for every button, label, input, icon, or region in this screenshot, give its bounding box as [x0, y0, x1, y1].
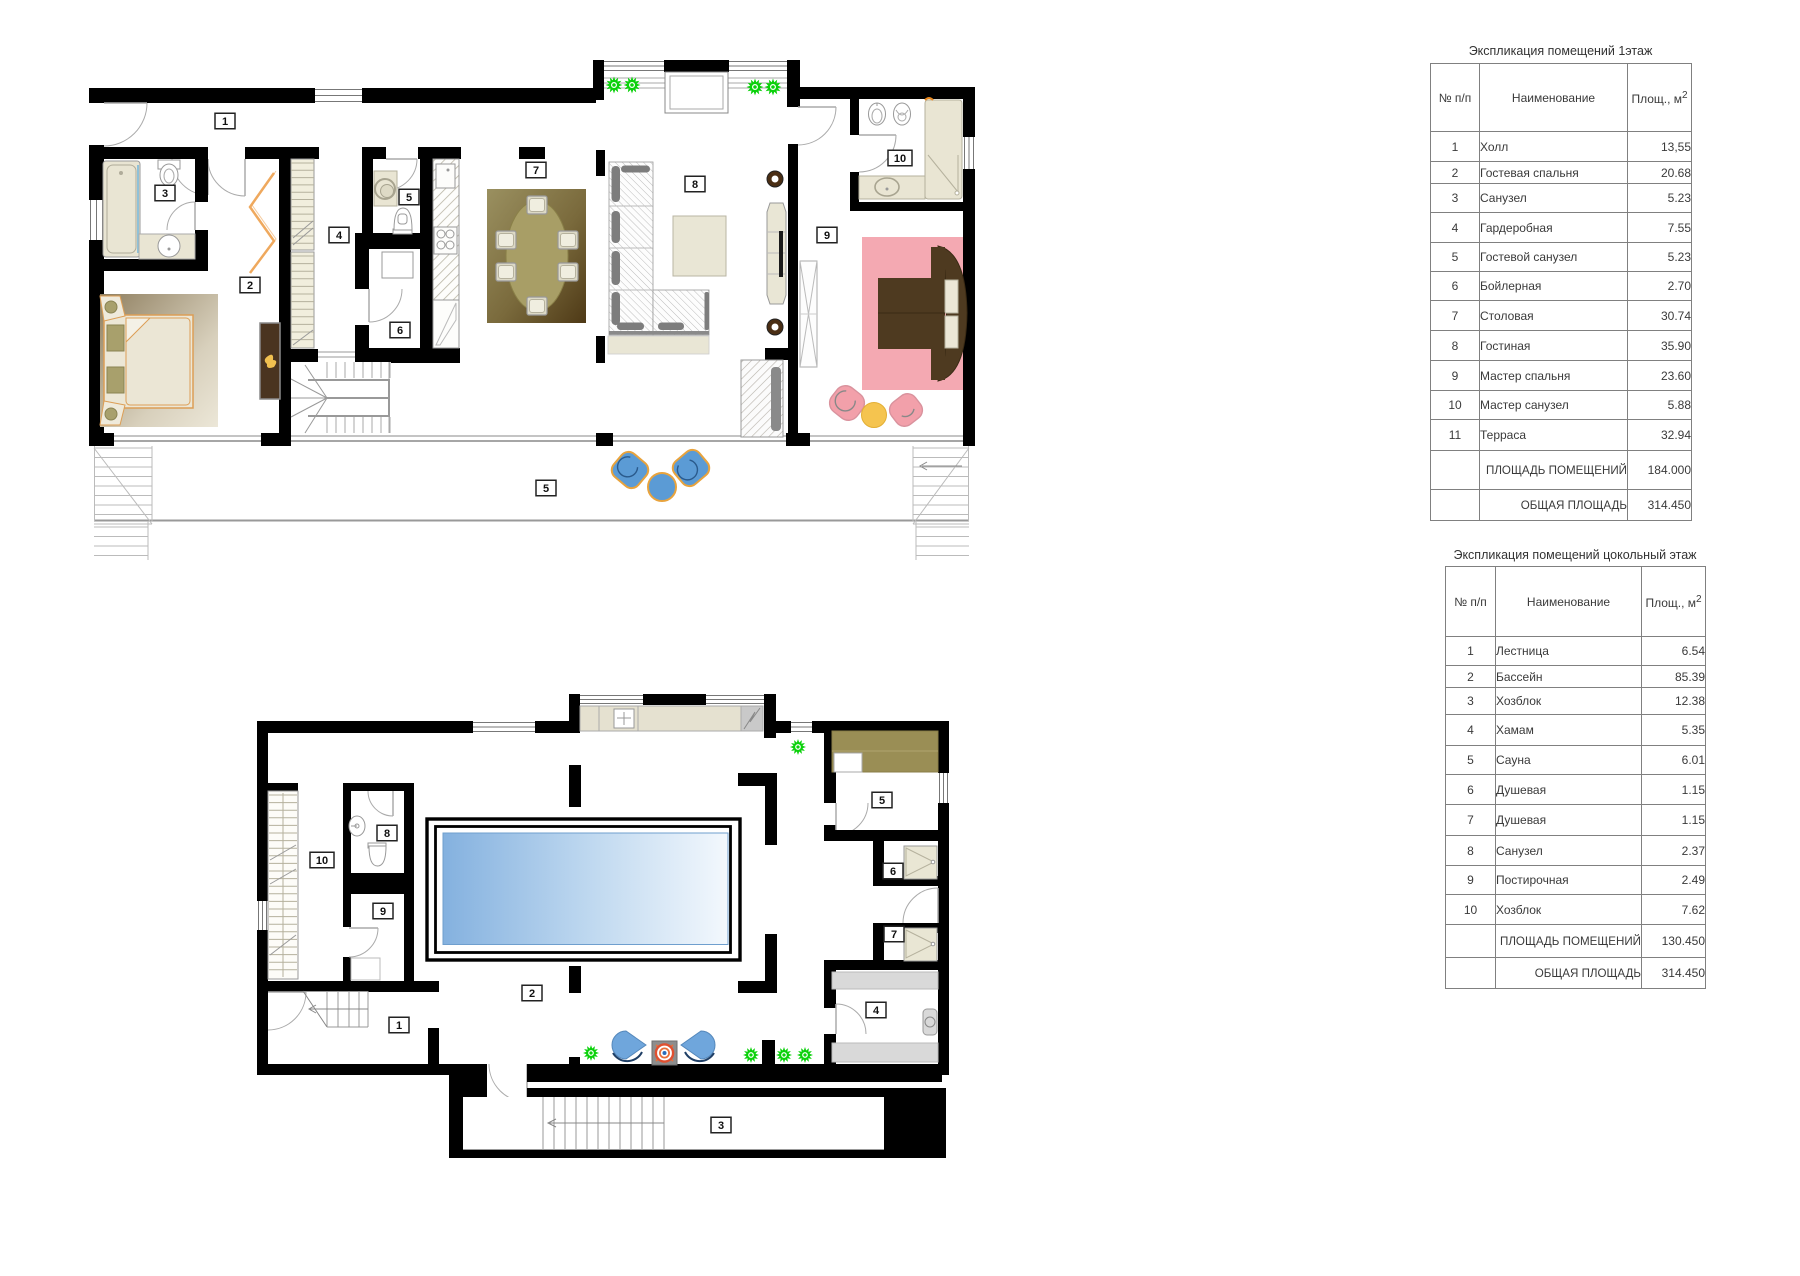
- svg-text:3: 3: [718, 1120, 724, 1132]
- svg-text:10: 10: [894, 153, 906, 165]
- svg-text:4: 4: [336, 230, 343, 242]
- svg-text:7: 7: [891, 929, 897, 941]
- svg-text:9: 9: [824, 230, 830, 242]
- svg-text:6: 6: [890, 866, 896, 878]
- svg-text:5: 5: [543, 483, 549, 495]
- svg-text:5: 5: [879, 795, 885, 807]
- svg-text:1: 1: [222, 116, 228, 128]
- svg-text:8: 8: [384, 828, 390, 840]
- svg-text:3: 3: [162, 188, 168, 200]
- svg-text:7: 7: [533, 165, 539, 177]
- svg-text:10: 10: [316, 855, 328, 867]
- svg-text:6: 6: [397, 325, 403, 337]
- svg-text:8: 8: [692, 179, 698, 191]
- svg-text:5: 5: [406, 192, 412, 204]
- svg-text:2: 2: [247, 280, 253, 292]
- svg-text:2: 2: [529, 988, 535, 1000]
- svg-text:4: 4: [873, 1005, 880, 1017]
- svg-text:9: 9: [380, 906, 386, 918]
- svg-text:1: 1: [396, 1020, 402, 1032]
